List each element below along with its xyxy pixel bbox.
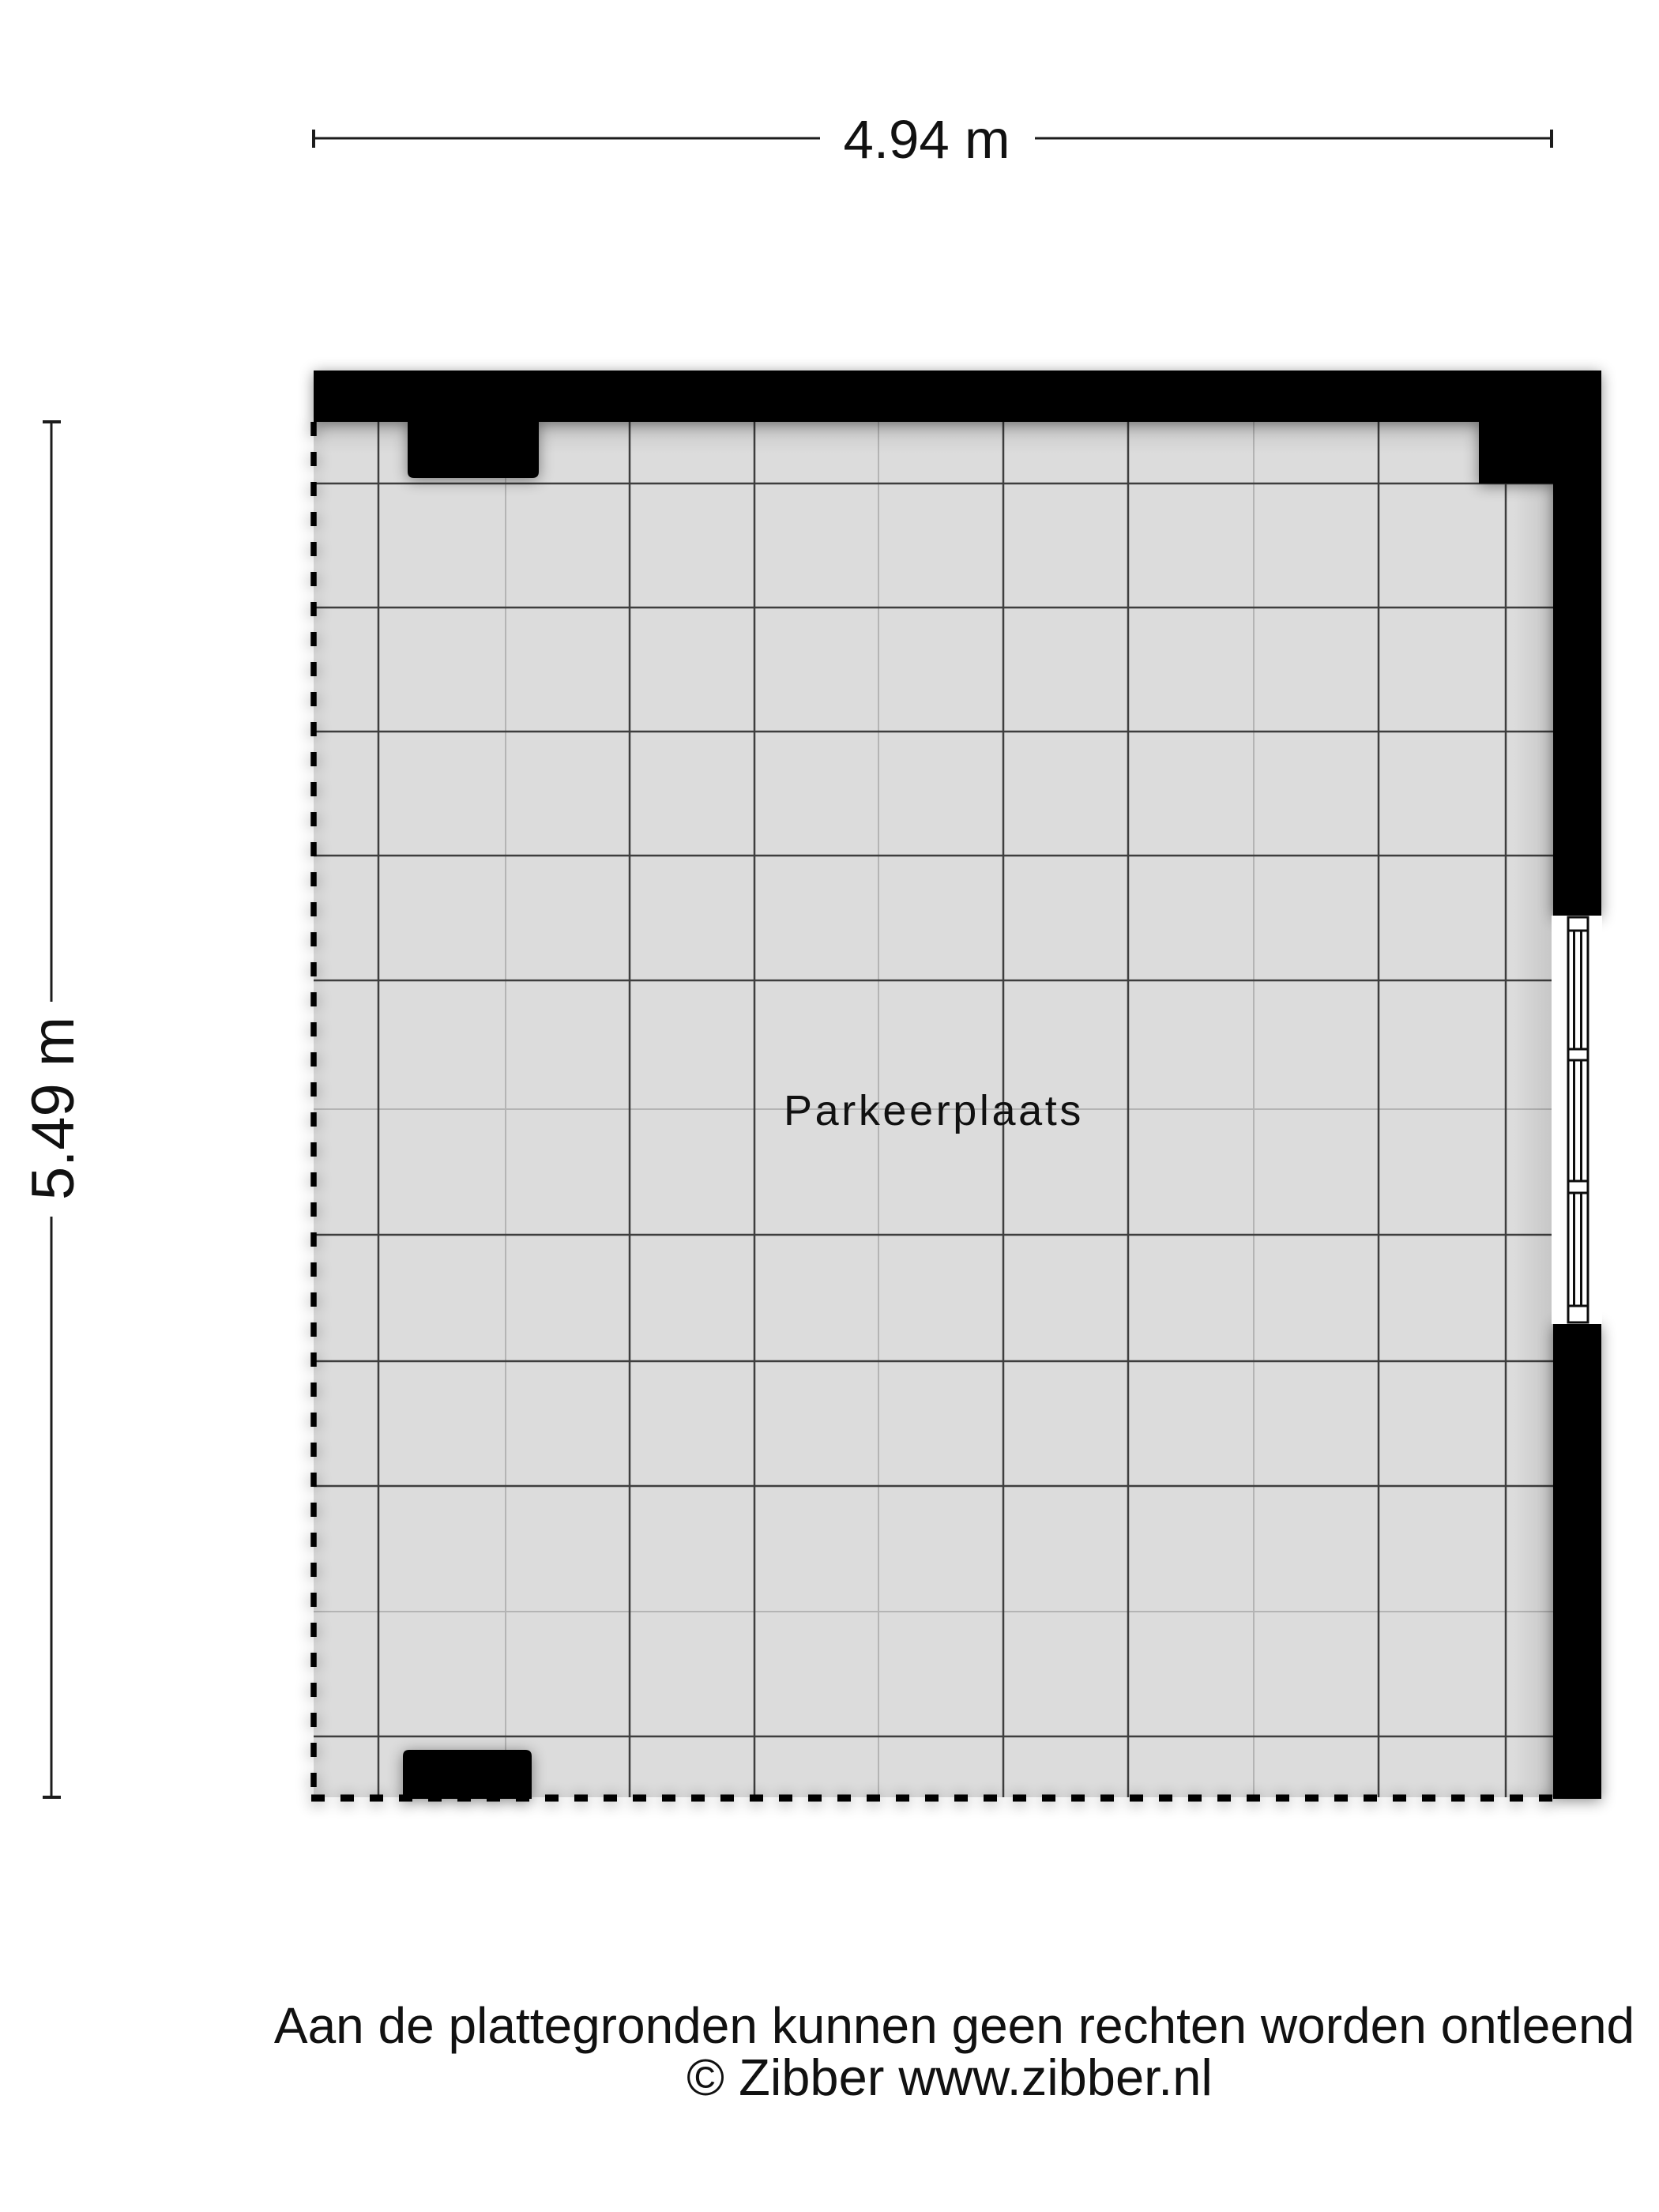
svg-text:4.94 m: 4.94 m <box>844 109 1010 170</box>
svg-text:Parkeerplaats: Parkeerplaats <box>784 1087 1084 1134</box>
svg-text:Aan de plattegronden kunnen ge: Aan de plattegronden kunnen geen rechten… <box>274 1997 1635 2054</box>
svg-text:5.49 m: 5.49 m <box>20 1017 87 1200</box>
svg-text:© Zibber www.zibber.nl: © Zibber www.zibber.nl <box>687 2048 1213 2106</box>
